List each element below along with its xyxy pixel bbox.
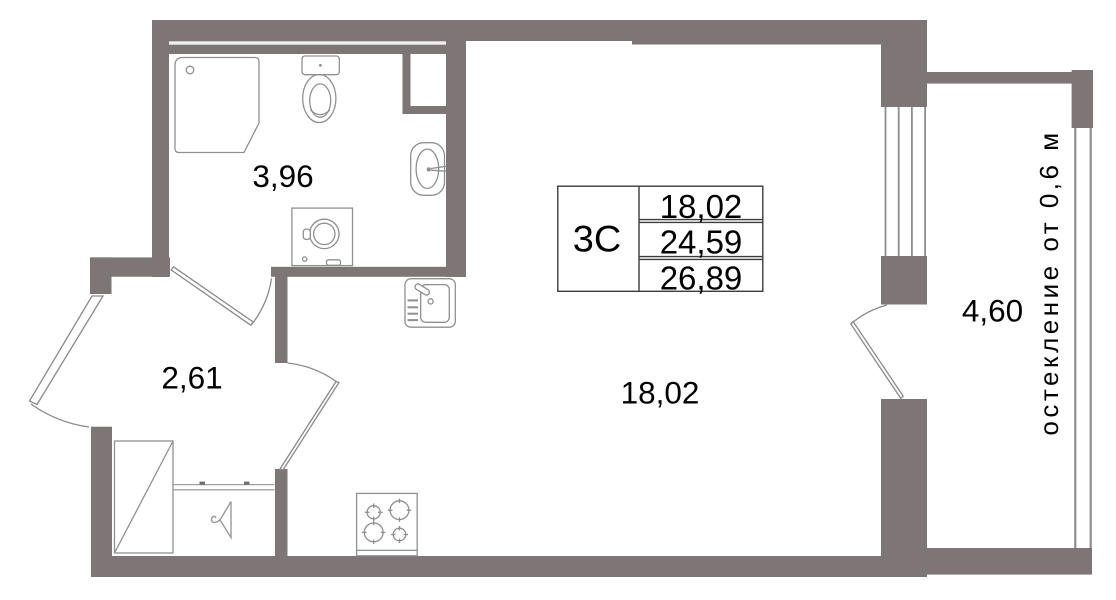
- svg-text:2,61: 2,61: [161, 360, 222, 396]
- svg-text:26,89: 26,89: [660, 259, 743, 296]
- svg-text:3С: 3С: [573, 218, 622, 260]
- svg-text:18,02: 18,02: [660, 188, 743, 225]
- svg-text:18,02: 18,02: [621, 375, 700, 411]
- svg-text:4,60: 4,60: [962, 293, 1023, 329]
- svg-text:3,96: 3,96: [252, 158, 313, 194]
- svg-text:24,59: 24,59: [660, 223, 743, 260]
- svg-text:остекление от 0,6 м: остекление от 0,6 м: [1034, 129, 1064, 435]
